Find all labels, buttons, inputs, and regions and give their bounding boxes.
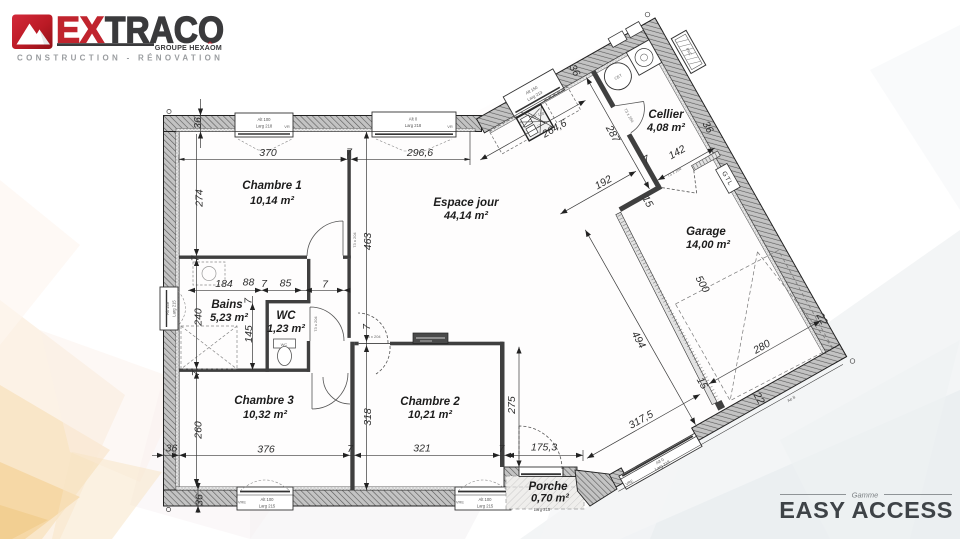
svg-text:4,08 m²: 4,08 m²	[646, 122, 685, 134]
svg-text:WC: WC	[281, 342, 288, 347]
svg-text:240: 240	[193, 308, 205, 327]
svg-text:36: 36	[194, 494, 206, 506]
svg-text:Larg 218: Larg 218	[405, 123, 422, 128]
svg-text:Chambre 1: Chambre 1	[242, 180, 301, 192]
svg-text:Larg 215: Larg 215	[259, 504, 276, 509]
svg-text:10,32 m²: 10,32 m²	[243, 409, 287, 421]
svg-text:Chambre 2: Chambre 2	[400, 396, 460, 408]
svg-text:Larg 218: Larg 218	[256, 124, 273, 129]
svg-text:184: 184	[215, 278, 233, 290]
svg-text:EASY ACCESS: EASY ACCESS	[779, 497, 953, 523]
svg-text:WC: WC	[276, 310, 296, 322]
svg-text:Larg 215: Larg 215	[172, 300, 177, 317]
svg-text:274: 274	[194, 189, 206, 208]
svg-text:Garage: Garage	[686, 226, 726, 238]
svg-text:Alt 100: Alt 100	[257, 117, 271, 122]
svg-text:44,14 m²: 44,14 m²	[443, 210, 488, 222]
svg-text:88: 88	[243, 277, 255, 289]
svg-text:VRE: VRE	[456, 500, 465, 505]
svg-text:Porche: Porche	[529, 481, 569, 493]
svg-text:36: 36	[166, 443, 178, 455]
svg-text:175,3: 175,3	[531, 442, 557, 454]
svg-text:Larg 215: Larg 215	[477, 504, 494, 509]
svg-text:260: 260	[193, 421, 205, 440]
svg-text:73 x 204: 73 x 204	[313, 316, 318, 332]
svg-text:370: 370	[259, 147, 277, 159]
svg-text:Bains: Bains	[211, 299, 242, 311]
svg-text:Larg 215: Larg 215	[534, 507, 551, 512]
svg-text:36: 36	[192, 117, 204, 129]
svg-text:463: 463	[362, 233, 374, 251]
svg-text:VRE: VRE	[238, 500, 247, 505]
svg-text:10,21 m²: 10,21 m²	[408, 409, 452, 421]
svg-text:Cellier: Cellier	[648, 109, 684, 121]
svg-text:1,23 m²: 1,23 m²	[267, 323, 305, 335]
svg-text:VR: VR	[447, 124, 453, 129]
svg-text:85: 85	[280, 278, 292, 290]
svg-text:321: 321	[413, 443, 431, 455]
svg-text:296,6: 296,6	[406, 147, 433, 159]
svg-text:145: 145	[243, 325, 255, 343]
svg-text:0,70 m²: 0,70 m²	[531, 493, 569, 505]
svg-text:Alt 100: Alt 100	[260, 497, 274, 502]
svg-text:Chambre 3: Chambre 3	[234, 395, 294, 407]
svg-text:14,00 m²: 14,00 m²	[686, 239, 730, 251]
svg-text:GROUPE HEXAOM: GROUPE HEXAOM	[155, 43, 222, 52]
svg-text:275: 275	[506, 396, 518, 415]
svg-text:318: 318	[362, 408, 374, 426]
svg-text:Alt 100: Alt 100	[478, 497, 492, 502]
svg-text:Espace jour: Espace jour	[433, 197, 499, 209]
svg-text:Alt 0: Alt 0	[409, 117, 418, 122]
svg-text:VR: VR	[284, 124, 290, 129]
svg-text:5,23 m²: 5,23 m²	[210, 312, 248, 324]
svg-text:CONSTRUCTION - RÉNOVATION: CONSTRUCTION - RÉNOVATION	[17, 54, 223, 63]
svg-text:376: 376	[257, 444, 275, 456]
svg-text:73 x 204: 73 x 204	[352, 232, 357, 248]
svg-text:10,14 m²: 10,14 m²	[250, 195, 294, 207]
svg-text:Alt 149: Alt 149	[165, 301, 170, 315]
